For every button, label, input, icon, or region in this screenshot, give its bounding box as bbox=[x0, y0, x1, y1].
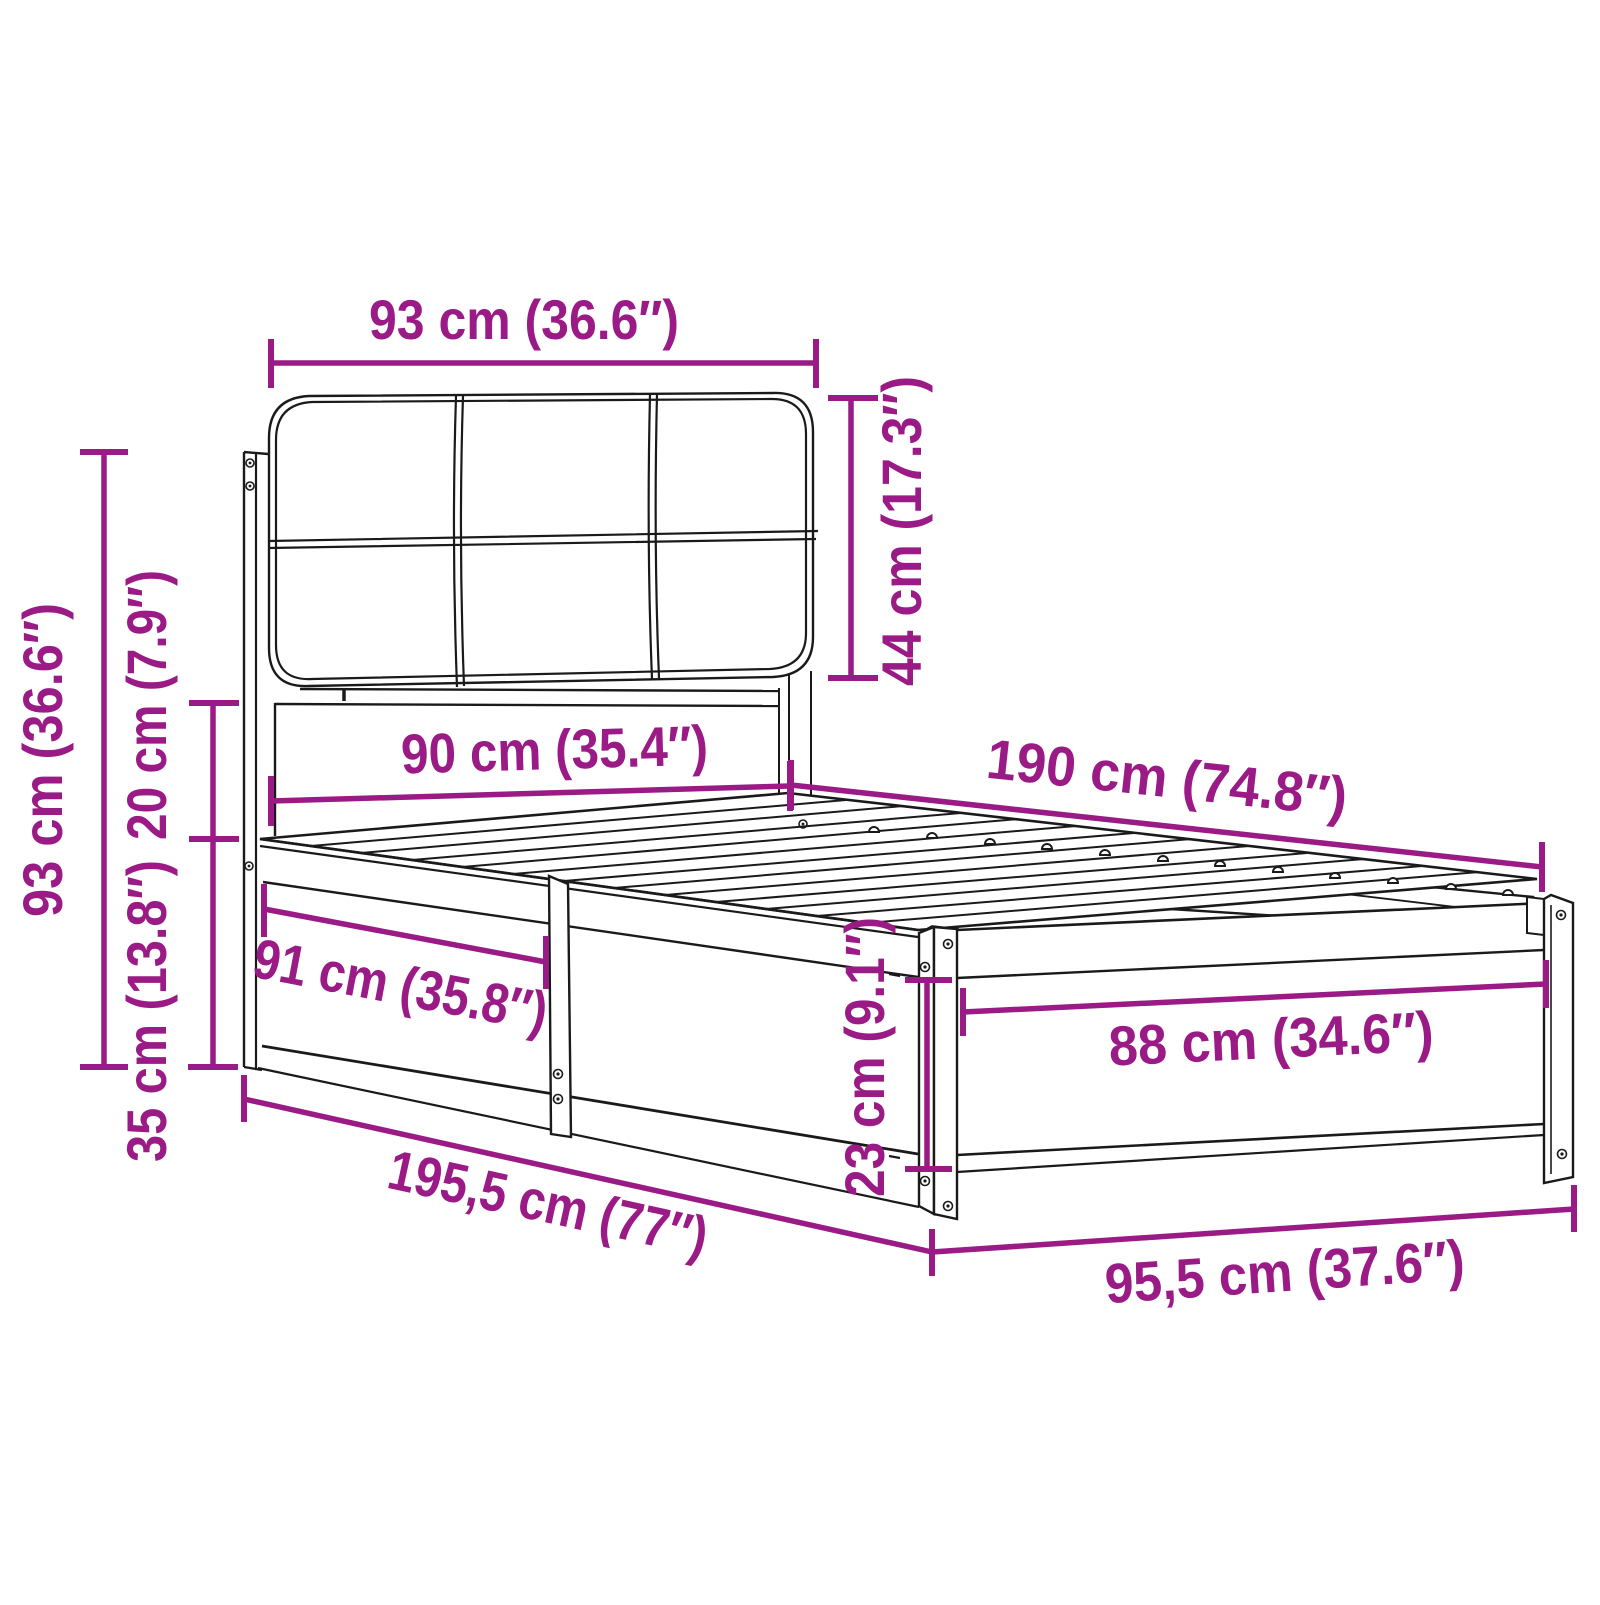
svg-text:44 cm (17.3″): 44 cm (17.3″) bbox=[870, 376, 933, 686]
svg-text:93 cm (36.6″): 93 cm (36.6″) bbox=[369, 288, 679, 351]
svg-text:90 cm (35.4″): 90 cm (35.4″) bbox=[400, 713, 709, 785]
svg-text:20 cm (7.9″): 20 cm (7.9″) bbox=[115, 570, 178, 840]
svg-text:35 cm (13.8″): 35 cm (13.8″) bbox=[115, 860, 178, 1162]
svg-text:93 cm (36.6″): 93 cm (36.6″) bbox=[11, 603, 74, 917]
svg-text:23 cm (9.1″): 23 cm (9.1″) bbox=[833, 917, 896, 1197]
